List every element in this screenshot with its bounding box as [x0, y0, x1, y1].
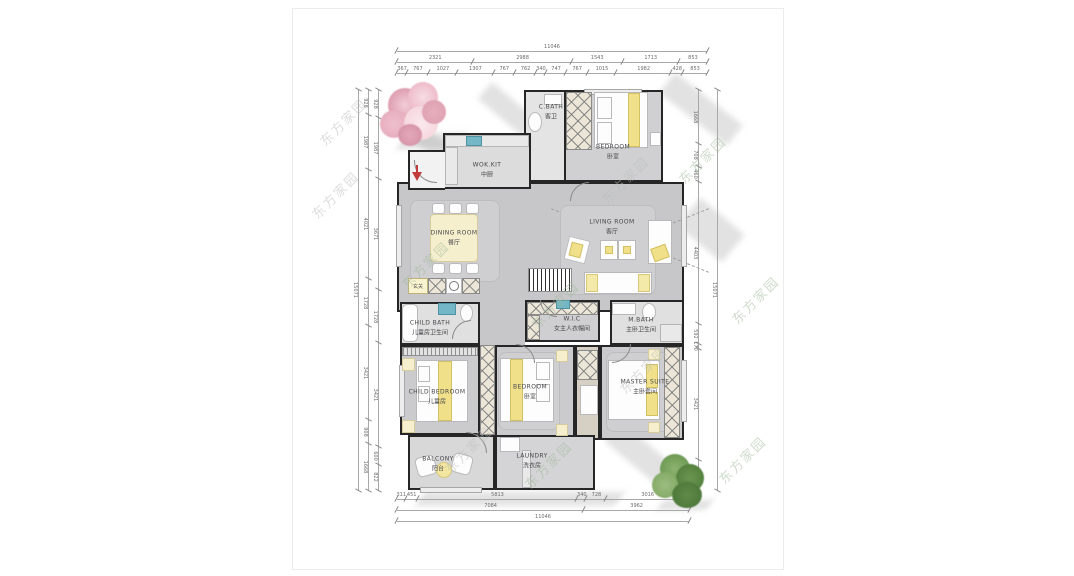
dimension-segment: 3671 — [371, 179, 379, 291]
label-bedroom-mid: BEDROOM卧室 — [513, 384, 547, 401]
dim-top-major: 2321298815431713853 — [397, 55, 707, 63]
pillow — [418, 366, 430, 382]
label-bedroom-top: BEDROOM卧室 — [596, 144, 630, 161]
dim-bottom-minor: 31145158133407283016 — [397, 492, 689, 500]
window-radiator — [402, 347, 478, 356]
dining-chair — [466, 203, 479, 214]
pillow — [536, 362, 550, 380]
screenshot-root: 11046 2321298815431713853 36776710271307… — [0, 0, 1074, 576]
wardrobe — [577, 350, 598, 380]
window-marker — [681, 360, 687, 422]
dimension-segment: 3421 — [371, 343, 379, 447]
dimension-segment: 1987 — [361, 115, 369, 169]
window-marker — [399, 365, 405, 417]
dimension-segment: 5813 — [418, 492, 577, 500]
pillow — [597, 97, 612, 119]
coffee-table-decor — [605, 246, 613, 254]
entry-cabinet — [428, 278, 446, 294]
bed-runner — [628, 93, 640, 147]
dressing-desk — [580, 385, 598, 415]
dimension-segment: 762 — [515, 66, 536, 74]
wardrobe — [566, 92, 592, 150]
kitchen-counter — [445, 135, 529, 147]
kitchen-counter-side — [445, 147, 458, 185]
dimension-segment: 7084 — [397, 503, 584, 511]
sofa-cushion — [586, 274, 598, 292]
kitchen-sink — [466, 136, 482, 146]
entry-cabinet — [462, 278, 480, 294]
dimension-segment: 1668 — [361, 444, 369, 490]
dimension-segment: 15071 — [351, 90, 359, 490]
label-living: LIVING ROOM客厅 — [589, 219, 634, 236]
dimension-segment: 853 — [683, 66, 707, 74]
window-marker — [681, 205, 687, 267]
dimension-segment: 853 — [679, 55, 707, 63]
sofa-cushion — [638, 274, 650, 292]
nightstand — [556, 424, 568, 436]
dim-bottom-major: 70843962 — [397, 503, 689, 511]
dimension-segment: 3421 — [691, 349, 699, 460]
dimension-segment: 1015 — [588, 66, 616, 74]
nightstand — [556, 350, 568, 362]
dim-top-minor: 3677671027130776776234074776710151982428… — [397, 66, 707, 74]
dining-chair — [466, 263, 479, 274]
dimension-segment: 1668 — [691, 90, 699, 144]
laundry-cabinet — [500, 437, 520, 452]
label-child-bath: CHILD BATH儿童房卫生间 — [410, 320, 450, 337]
dimension-segment: 767 — [407, 66, 428, 74]
green-tree-illustration — [652, 448, 708, 510]
label-master-bath: M.BATH主卧卫生间 — [626, 317, 656, 334]
window-marker — [396, 205, 402, 267]
label-child-bedroom: CHILD BEDROOM儿童房 — [409, 389, 466, 406]
washer-icon — [446, 278, 462, 294]
dimension-segment: 11046 — [397, 514, 689, 522]
dimension-segment: 1027 — [429, 66, 458, 74]
entrance-arrow-icon — [412, 172, 422, 186]
bath-vanity — [612, 303, 636, 315]
dining-chair — [432, 203, 445, 214]
coffee-table-decor — [623, 246, 631, 254]
dim-bottom-overall: 11046 — [397, 514, 689, 522]
dining-chair — [449, 263, 462, 274]
dimension-segment: 2988 — [473, 55, 571, 63]
dimension-segment: 1713 — [623, 55, 679, 63]
nightstand — [648, 422, 660, 433]
dimension-segment: 11046 — [397, 44, 707, 52]
dim-left-major: 92819874021172834219081668 — [361, 90, 369, 490]
bath-sink — [438, 303, 456, 315]
window-marker — [420, 487, 482, 493]
toilet — [460, 304, 473, 322]
dimension-segment: 1728 — [361, 279, 369, 326]
dimension-segment: 1543 — [572, 55, 623, 63]
pillow — [597, 122, 612, 144]
nightstand — [650, 132, 661, 146]
dimension-segment: 1307 — [457, 66, 493, 74]
dim-left-overall: 15071 — [351, 90, 359, 490]
dimension-segment: 2321 — [397, 55, 473, 63]
dimension-segment: 4021 — [361, 170, 369, 280]
label-wic: W.I.C女主人衣帽间 — [554, 316, 590, 333]
nightstand — [402, 358, 415, 371]
dimension-segment: 822 — [371, 465, 379, 490]
label-guest-bath: C.BATH客卫 — [539, 104, 563, 121]
nightstand — [402, 420, 415, 433]
pink-tree-illustration — [378, 80, 450, 152]
dimension-segment: 767 — [566, 66, 587, 74]
dimension-segment: 767 — [494, 66, 515, 74]
dimension-segment: 1728 — [371, 290, 379, 343]
dining-chair — [449, 203, 462, 214]
dim-top-overall: 11046 — [397, 44, 707, 52]
pillow — [646, 392, 658, 416]
dimension-segment: 4403 — [691, 182, 699, 325]
hallway — [480, 292, 525, 347]
label-wok-kitchen: WOK.KIT中厨 — [473, 162, 502, 179]
dimension-segment: 3421 — [361, 326, 369, 419]
shower — [660, 324, 682, 342]
dimension-segment: 1982 — [616, 66, 671, 74]
